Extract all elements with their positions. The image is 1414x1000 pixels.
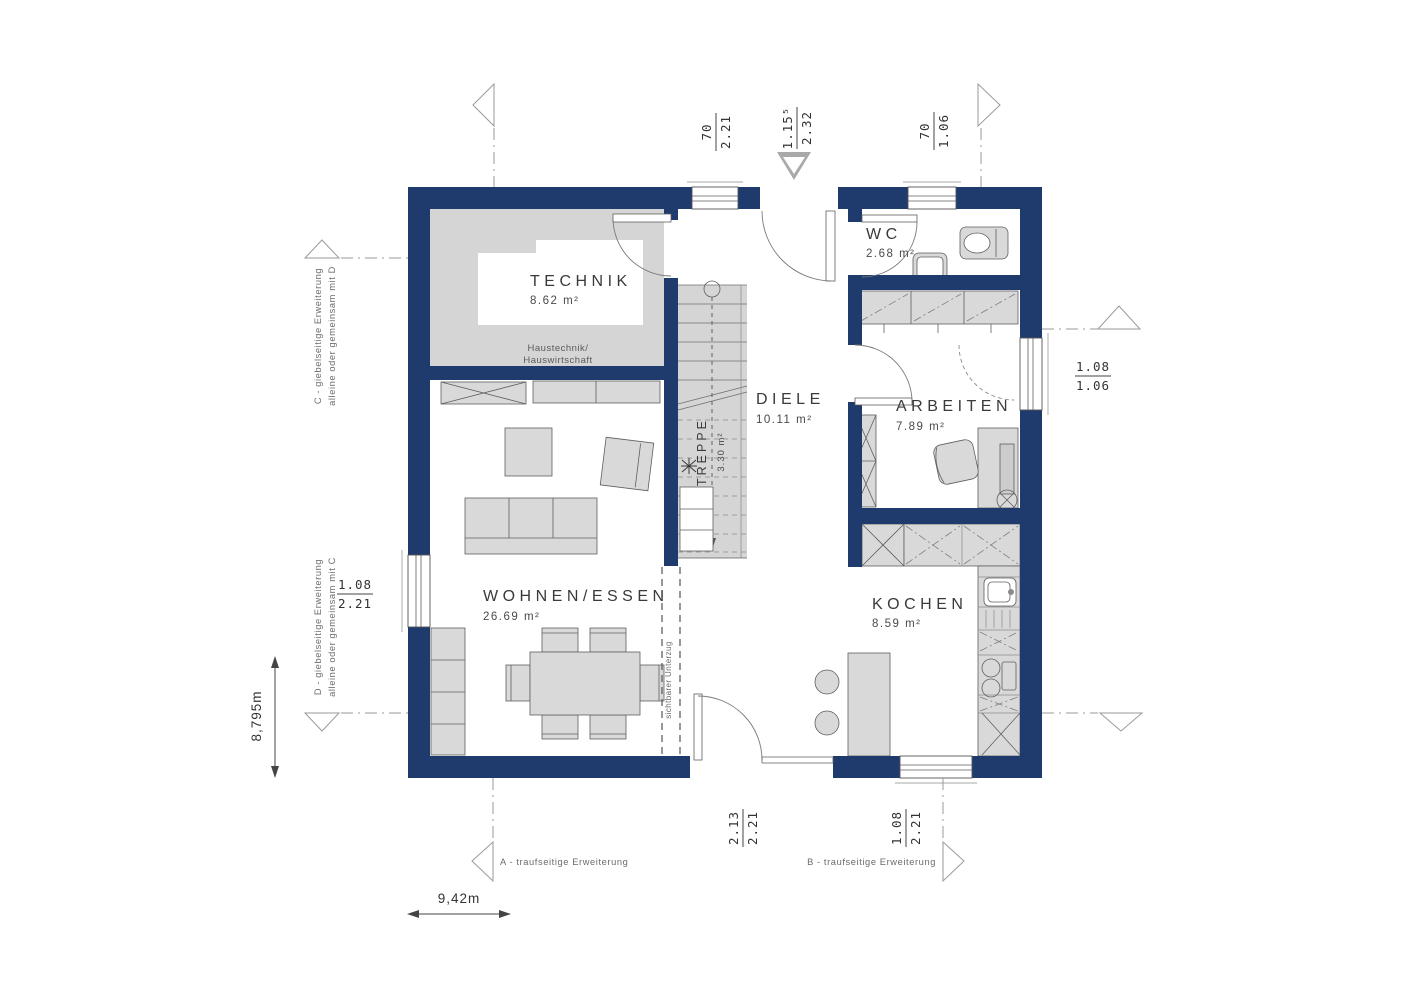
svg-text:9,42m: 9,42m [438, 891, 481, 906]
dim-terrace-door: 2.13 2.21 [726, 809, 760, 847]
window-wohnen [402, 550, 430, 632]
svg-text:1.15⁵: 1.15⁵ [780, 107, 795, 150]
overall-depth: 8,795m [249, 656, 279, 778]
svg-text:1.08: 1.08 [1076, 359, 1110, 374]
svg-text:1.06: 1.06 [1076, 378, 1110, 393]
desk-monitor [1000, 444, 1014, 494]
svg-text:2.13: 2.13 [726, 811, 741, 845]
svg-text:1.08: 1.08 [338, 577, 372, 592]
dim-entry-door: 1.15⁵ 2.32 [780, 107, 814, 150]
room-technik-label: TECHNIK [530, 273, 632, 290]
svg-text:70: 70 [917, 122, 932, 139]
room-kochen-label: KOCHEN [872, 596, 967, 613]
room-diele-area: 10.11 m² [756, 414, 813, 426]
entrance-arrow-icon [777, 152, 811, 180]
sofa [465, 498, 597, 554]
dining-set [506, 628, 664, 739]
room-treppe-label: TREPPE [695, 418, 709, 486]
axis-triangle-left-upper [305, 240, 339, 258]
room-technik-area: 8.62 m² [530, 295, 580, 307]
room-wc-label: WC [866, 226, 902, 243]
axis-triangle-bottom-a [472, 842, 493, 881]
axis-triangle-right-upper [1098, 306, 1140, 329]
svg-text:8,795m: 8,795m [249, 690, 264, 741]
axis-triangle-right-lower [1100, 713, 1142, 731]
axis-c-label-2: alleine oder gemeinsam mit D [327, 266, 337, 406]
floor-plan: sichtbarer Unterzug TECHNIK 8.62 m² Haus… [0, 0, 1414, 1000]
room-wohnen-label: WOHNEN/ESSEN [483, 588, 669, 605]
axis-d-label-2: alleine oder gemeinsam mit C [327, 557, 337, 697]
lowboard [533, 381, 660, 403]
svg-text:2.21: 2.21 [718, 115, 733, 149]
dining-table [530, 652, 640, 715]
svg-text:70: 70 [699, 123, 714, 140]
window-arbeiten [1020, 333, 1048, 415]
overall-width: 9,42m [407, 891, 511, 918]
stool [815, 711, 839, 735]
axis-b-label: B - traufseitige Erweiterung [807, 857, 936, 867]
understair-cabinet [680, 487, 713, 551]
technik-note-2: Hauswirtschaft [523, 355, 592, 366]
wardrobe [858, 291, 1018, 333]
floor-plan-page: sichtbarer Unterzug TECHNIK 8.62 m² Haus… [0, 0, 1414, 1000]
axis-triangle-top-left [473, 84, 494, 126]
kitchen-counters [815, 524, 1020, 756]
sink-icon [984, 578, 1016, 606]
window-wc [903, 182, 961, 209]
svg-text:2.21: 2.21 [745, 811, 760, 845]
dim-window-arbeiten: 1.08 1.06 [1075, 359, 1111, 393]
svg-text:2.21: 2.21 [908, 811, 923, 845]
window-kochen [895, 756, 977, 783]
overall-dimensions: 8,795m 9,42m [249, 656, 511, 918]
axis-c-label-1: C - giebelseitige Erweiterung [313, 268, 323, 404]
technik-note-1: Haustechnik/ [528, 343, 589, 354]
living-furniture [431, 381, 664, 755]
axis-d-label-1: D - giebelseitige Erweiterung [313, 559, 323, 695]
room-treppe-area: 3.30 m² [716, 432, 727, 471]
room-arbeiten-label: ARBEITEN [896, 398, 1012, 415]
room-diele-label: DIELE [756, 391, 825, 408]
svg-text:1.08: 1.08 [889, 811, 904, 845]
room-wohnen-area: 26.69 m² [483, 611, 540, 623]
armchair [600, 437, 653, 490]
stool [815, 670, 839, 694]
room-arbeiten-area: 7.89 m² [896, 421, 946, 433]
axis-triangle-left-lower [305, 713, 339, 731]
axis-triangle-top-right [978, 84, 1000, 126]
entry-door [762, 211, 835, 281]
wc-door [862, 215, 917, 277]
dim-window-top: 70 2.21 [699, 113, 733, 151]
room-wc-area: 2.68 m² [866, 248, 916, 260]
dim-window-wc: 70 1.06 [917, 112, 951, 150]
svg-text:1.06: 1.06 [936, 114, 951, 148]
wall-shelf [431, 628, 465, 755]
beam-note-label: sichtbarer Unterzug [664, 641, 673, 718]
axis-a-label: A - traufseitige Erweiterung [500, 857, 628, 867]
dim-window-kochen: 1.08 2.21 [889, 809, 923, 847]
svg-text:2.21: 2.21 [338, 596, 372, 611]
window-top [687, 182, 743, 209]
terrace-door [694, 694, 833, 763]
svg-text:2.32: 2.32 [799, 111, 814, 145]
coffee-table [505, 428, 552, 476]
toilet-icon [960, 227, 1008, 259]
axis-triangle-bottom-b [943, 842, 964, 881]
arbeiten-door [855, 345, 1014, 405]
room-kochen-area: 8.59 m² [872, 618, 922, 630]
office-chair [932, 438, 979, 485]
kitchen-island [848, 653, 890, 756]
optional-door-swing [959, 345, 1014, 400]
dim-window-wohnen: 1.08 2.21 [337, 577, 373, 611]
